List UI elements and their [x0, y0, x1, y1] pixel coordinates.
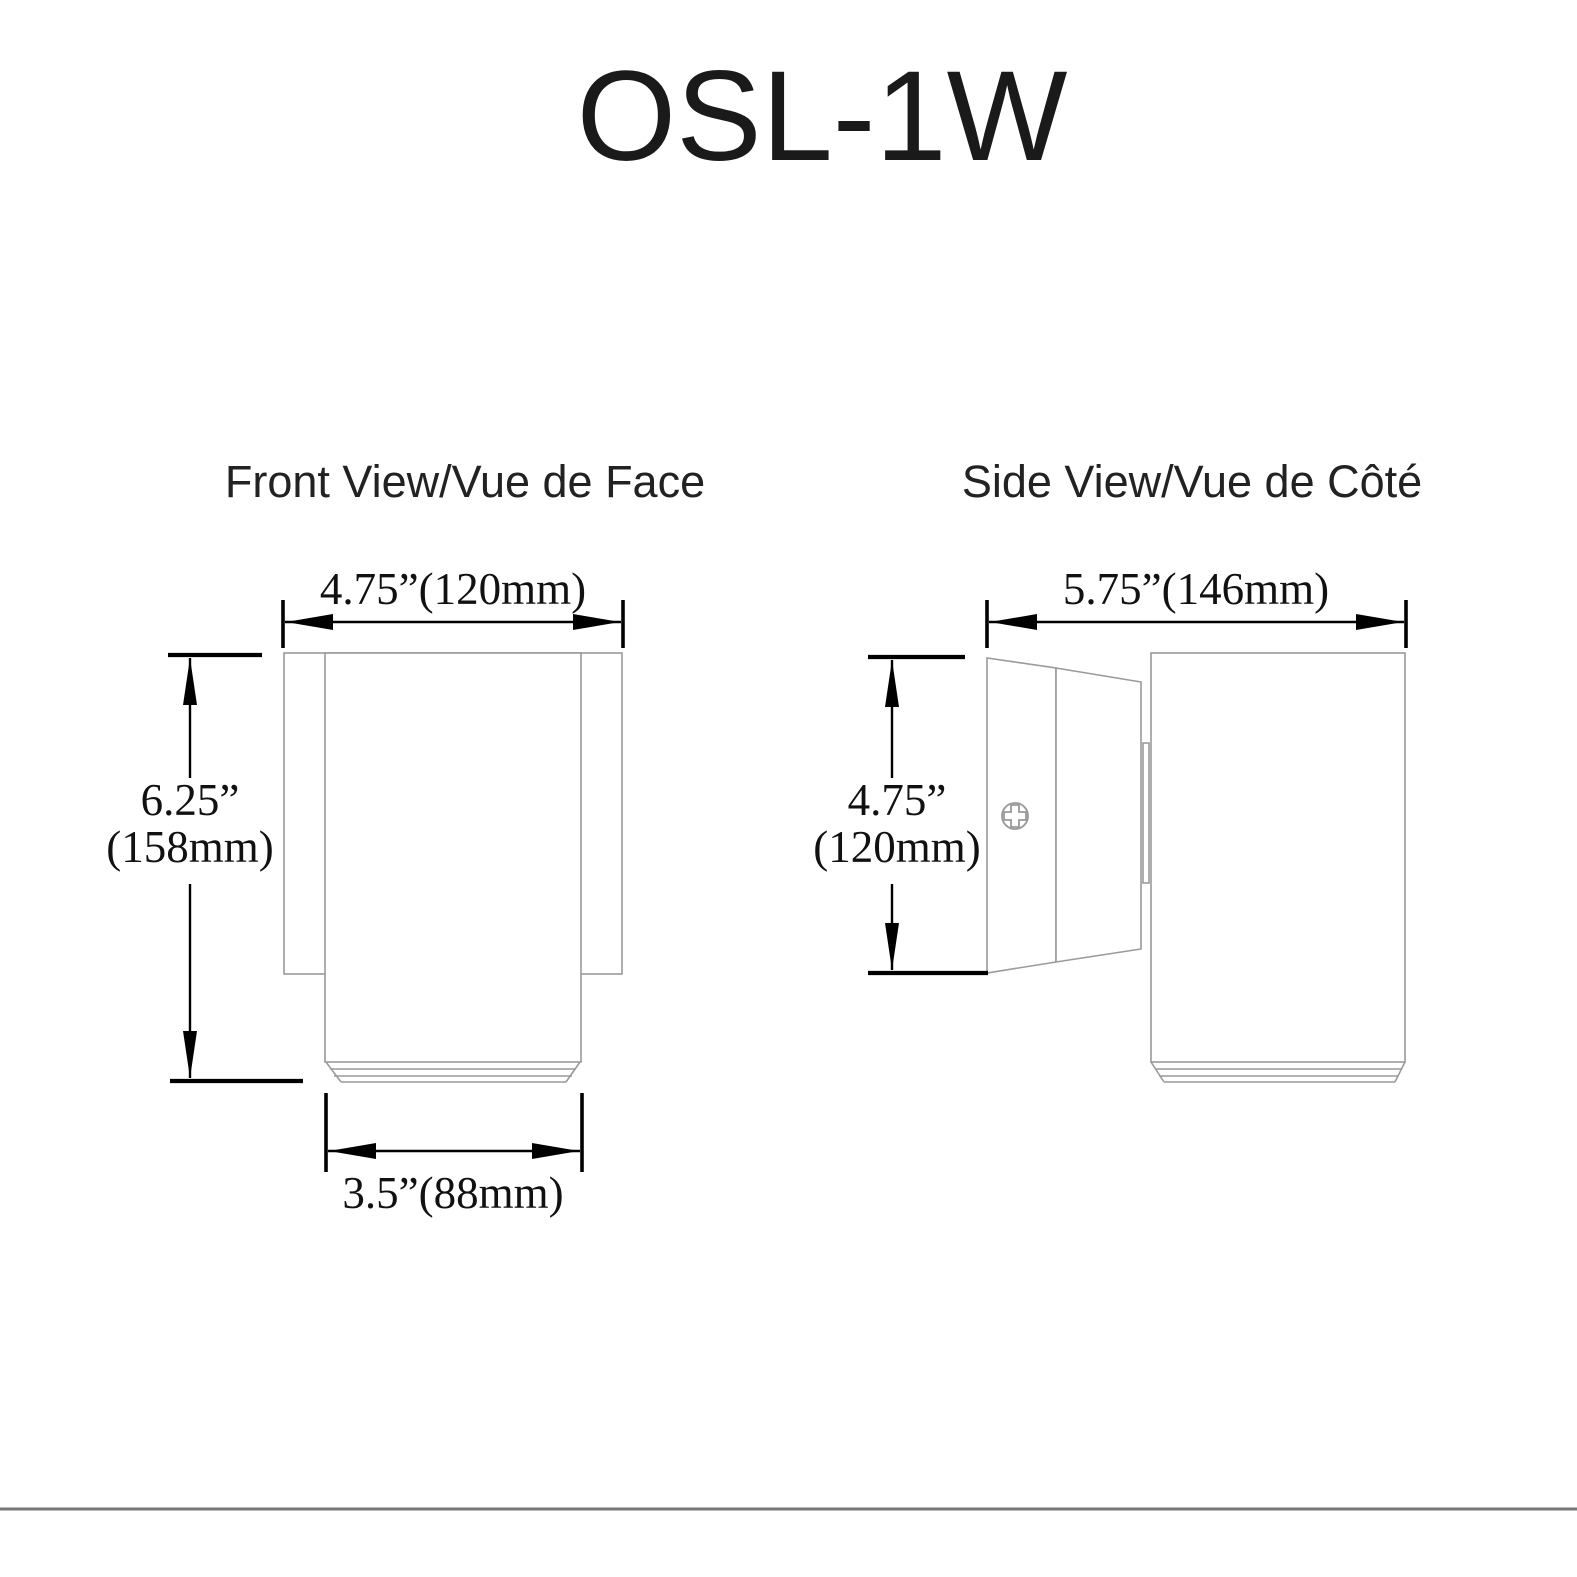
arrow-up-icon [885, 660, 899, 707]
spec-sheet-page: OSL-1W Front View/Vue de Face Side View/… [0, 0, 1577, 1577]
side-view-drawing [987, 653, 1405, 1082]
side-depth-dimension: 5.75”(146mm) [987, 564, 1406, 648]
front-width-dimension: 4.75”(120mm) [283, 564, 623, 648]
side-height-dimension: 4.75” (120mm) [813, 657, 988, 973]
arrow-right-icon [1356, 614, 1403, 630]
front-lens-dimension: 3.5”(88mm) [326, 1093, 582, 1218]
side-arm [1056, 668, 1141, 962]
side-connector [1143, 743, 1149, 883]
technical-drawing: OSL-1W Front View/Vue de Face Side View/… [0, 0, 1577, 1577]
front-view-drawing [284, 653, 622, 1082]
side-view-label: Side View/Vue de Côté [962, 456, 1422, 507]
front-lens-rim [326, 1062, 580, 1082]
side-body [1151, 653, 1405, 1062]
arrow-right-icon [532, 1143, 579, 1159]
arrow-right-icon [573, 614, 620, 630]
arrow-up-icon [183, 658, 197, 705]
front-height-label-mm: (158mm) [106, 822, 273, 872]
arrow-left-icon [990, 614, 1037, 630]
front-body [325, 653, 581, 1062]
front-height-label-in: 6.25” [141, 775, 240, 825]
side-height-label-in: 4.75” [848, 775, 947, 825]
side-lens-rim [1151, 1062, 1405, 1082]
side-depth-label: 5.75”(146mm) [1063, 564, 1329, 614]
front-width-label: 4.75”(120mm) [320, 564, 586, 614]
arrow-left-icon [329, 1143, 376, 1159]
arrow-down-icon [885, 923, 899, 970]
screw-icon [1002, 803, 1028, 829]
front-view-label: Front View/Vue de Face [225, 456, 705, 507]
page-title: OSL-1W [577, 45, 1068, 188]
side-height-label-mm: (120mm) [813, 822, 980, 872]
arrow-down-icon [183, 1031, 197, 1078]
front-height-dimension: 6.25” (158mm) [106, 655, 303, 1081]
arrow-left-icon [286, 614, 333, 630]
front-lens-label: 3.5”(88mm) [342, 1168, 563, 1218]
